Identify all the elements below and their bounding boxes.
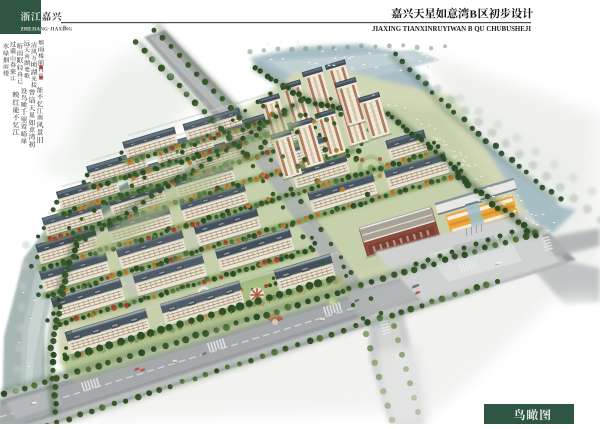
svg-text:B: B bbox=[470, 8, 478, 20]
svg-text:JIAXING TIANXINRUYIWAN B QU CH: JIAXING TIANXINRUYIWAN B QU CHUBUSHEJI bbox=[372, 24, 531, 33]
